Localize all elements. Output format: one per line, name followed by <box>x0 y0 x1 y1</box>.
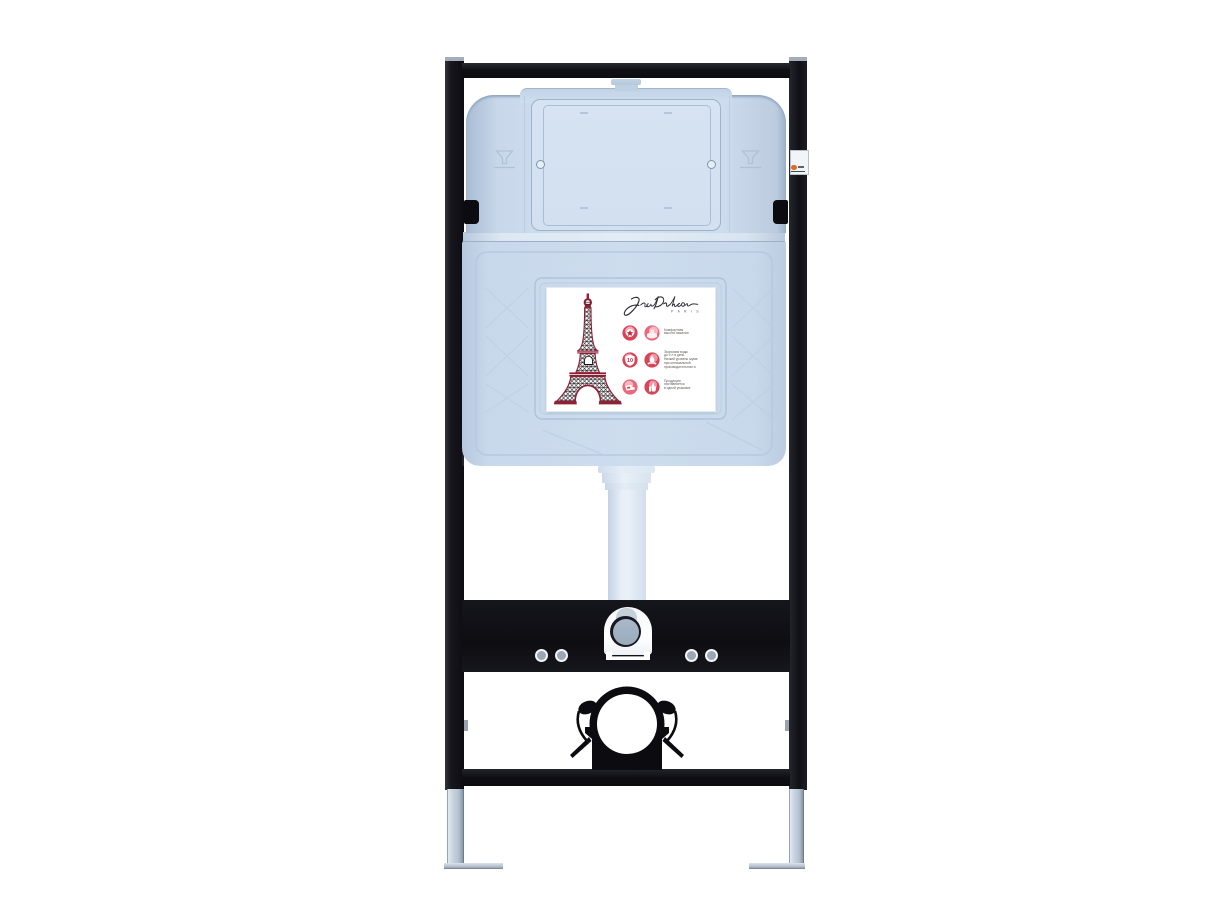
svg-text:10: 10 <box>627 357 633 363</box>
svg-text:P A R I S: P A R I S <box>671 310 700 314</box>
